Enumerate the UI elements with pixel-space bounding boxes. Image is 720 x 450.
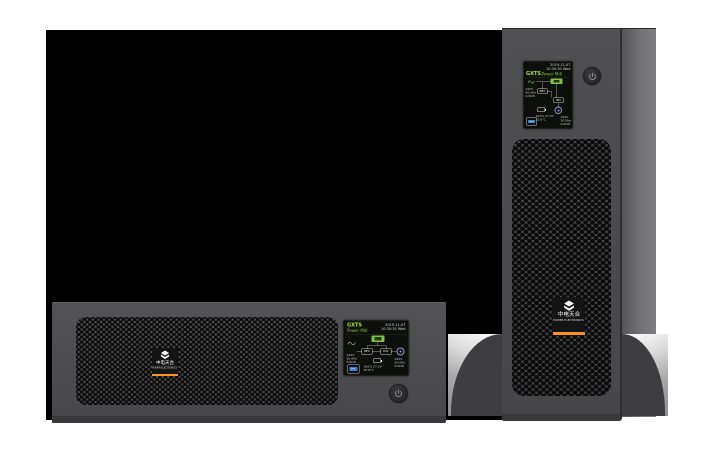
battery-reading: 25.6°C bbox=[364, 369, 374, 373]
output-reading: 0.0kW bbox=[395, 365, 404, 369]
rack-panel-base bbox=[52, 416, 446, 423]
rectifier-box: REC bbox=[538, 89, 548, 95]
battery-status-box bbox=[372, 336, 385, 343]
brand-accent-bar bbox=[152, 374, 178, 376]
brand-badge: 中电天合 POWER ELECTRONICS bbox=[553, 297, 585, 335]
rectifier-box: REC bbox=[362, 349, 373, 355]
brand-chinese-text: 中电天合 bbox=[156, 362, 174, 365]
brand-logo-icon bbox=[157, 350, 173, 360]
inverter-box: INV bbox=[381, 349, 392, 355]
lcd-model-text: GXTS bbox=[526, 72, 541, 77]
power-icon bbox=[394, 389, 403, 398]
tower-panel-base bbox=[502, 414, 620, 421]
tower-stand-right bbox=[622, 334, 668, 416]
power-icon bbox=[588, 72, 597, 81]
lcd-mode-text: Power Mdl bbox=[542, 73, 562, 77]
brand-logo-icon bbox=[559, 300, 579, 312]
ac-input-wave-icon bbox=[348, 341, 357, 347]
brand-accent-bar bbox=[553, 332, 585, 335]
rack-power-button[interactable] bbox=[388, 383, 409, 404]
rack-vent-grille bbox=[76, 317, 338, 405]
ac-input-wave-icon bbox=[528, 80, 536, 85]
tower-power-button[interactable] bbox=[582, 66, 602, 86]
input-reading: 0.0kW bbox=[347, 361, 356, 365]
battery-icon bbox=[538, 108, 546, 113]
output-reading: 0.0kW bbox=[561, 123, 570, 127]
lcd-time-text: 10:30:30 Wed bbox=[381, 327, 405, 331]
battery-module-icon bbox=[526, 118, 537, 126]
input-reading: 0.0kW bbox=[526, 95, 535, 99]
output-load-icon bbox=[555, 107, 563, 115]
tower-lcd-screen: 2019-11-07 10:30:30 Wed GXTS Power Mdl 2… bbox=[523, 61, 573, 129]
lcd-mode-text: Power Mdl bbox=[347, 329, 367, 333]
tower-front-panel: 2019-11-07 10:30:30 Wed GXTS Power Mdl 2… bbox=[502, 28, 622, 421]
brand-tagline: POWER ELECTRONICS bbox=[153, 367, 178, 368]
battery-reading: 25.6°C bbox=[536, 118, 546, 122]
output-load-icon bbox=[397, 348, 405, 356]
brand-badge: 中电天合 POWER ELECTRONICS bbox=[152, 348, 178, 376]
brand-chinese-text: 中电天合 bbox=[558, 313, 580, 317]
battery-module-icon bbox=[348, 365, 360, 374]
lcd-time-text: 10:30:30 Wed bbox=[546, 67, 570, 71]
rack-front-panel: 中电天合 POWER ELECTRONICS GXTS Power Mdl 20… bbox=[52, 302, 446, 423]
battery-icon bbox=[374, 359, 382, 364]
brand-tagline: POWER ELECTRONICS bbox=[554, 319, 585, 321]
rack-lcd-screen: GXTS Power Mdl 2019-11-07 10:30:30 Wed R… bbox=[343, 320, 409, 376]
lcd-model-text: GXTS bbox=[347, 323, 362, 328]
tower-vent-grille bbox=[512, 139, 611, 396]
tower-stand-left bbox=[448, 334, 502, 416]
